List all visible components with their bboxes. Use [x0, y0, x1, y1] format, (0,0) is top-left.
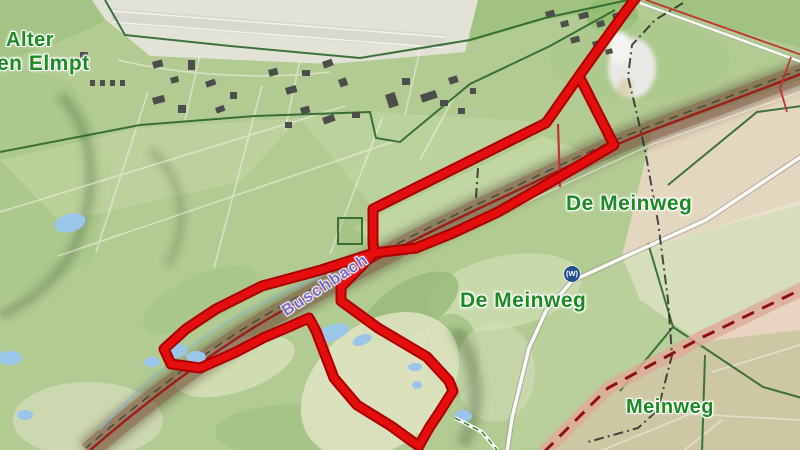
- airfield-area: [92, 0, 478, 64]
- map-canvas: [0, 0, 800, 450]
- topo-map[interactable]: Alter en Elmpt De Meinweg De Meinweg Mei…: [0, 0, 800, 450]
- label-place-top-left-line1: Alter: [6, 29, 54, 52]
- terrain-fields: [0, 0, 800, 450]
- label-de-meinweg-mid: De Meinweg: [460, 289, 586, 313]
- label-place-top-left-line2: en Elmpt: [0, 52, 90, 76]
- label-meinweg-lower: Meinweg: [626, 396, 714, 419]
- walking-node-icon: (W): [564, 266, 580, 282]
- label-de-meinweg-upper: De Meinweg: [566, 192, 692, 216]
